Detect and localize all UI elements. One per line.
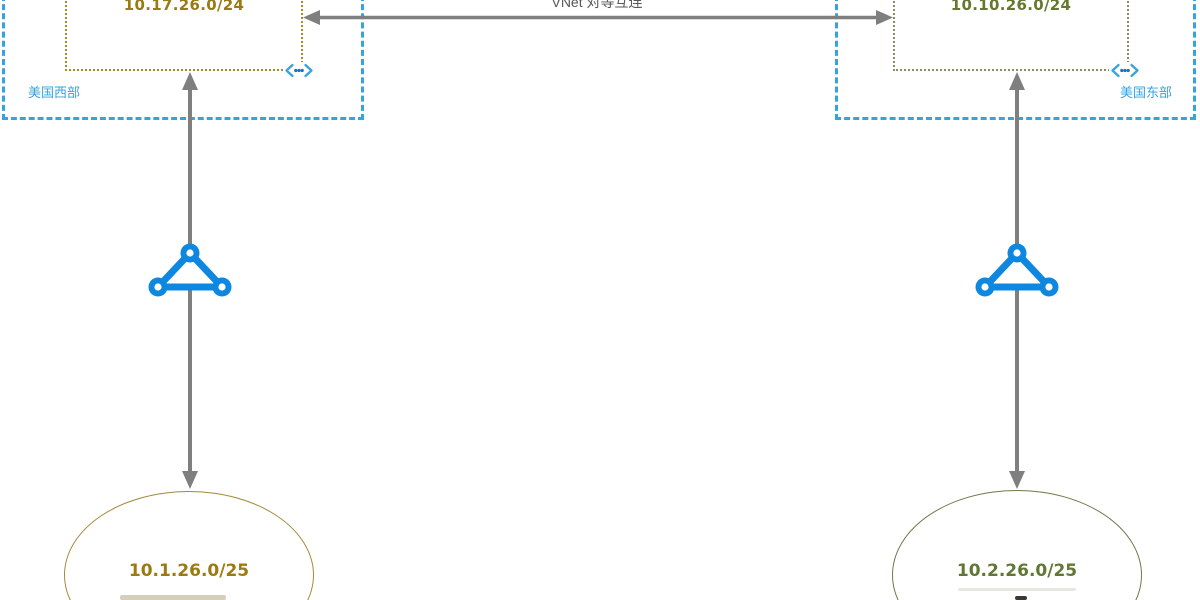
east-gateway-subnet-cidr: 10.2.26.0/25 (892, 561, 1142, 581)
east-clipped-text-fragment-faint (958, 588, 1076, 591)
west-gateway-subnet-cidr: 10.1.26.0/25 (64, 561, 314, 581)
west-clipped-text-fragment (120, 595, 226, 600)
east-subnet-icon (1109, 62, 1141, 79)
west-vpn-gateway-icon (149, 244, 232, 297)
east-vpn-gateway-icon (976, 244, 1059, 297)
vnet-peering-diagram: 10.17.26.0/24 10.10.26.0/24 美国西部 美国东部 VN… (0, 0, 1200, 600)
east-clipped-text-fragment (1015, 596, 1027, 600)
vnet-peering-arrow (303, 10, 893, 25)
west-subnet-icon (283, 62, 315, 79)
